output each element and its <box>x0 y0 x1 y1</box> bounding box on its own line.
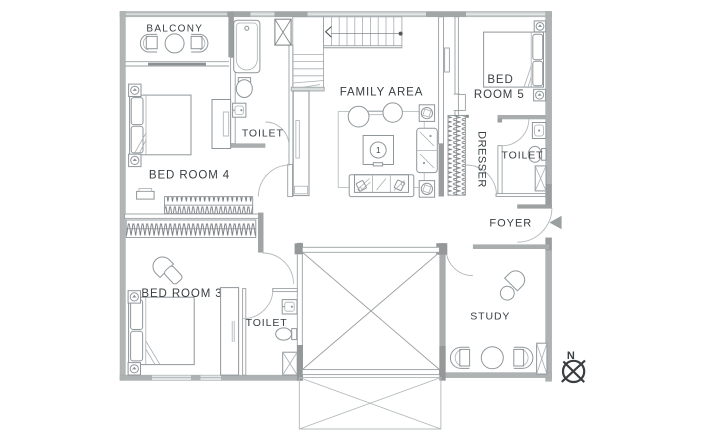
svg-text:TOILET: TOILET <box>242 127 284 139</box>
svg-text:BALCONY: BALCONY <box>146 24 203 35</box>
svg-text:BED ROOM 3: BED ROOM 3 <box>141 288 222 300</box>
svg-text:TOILET: TOILET <box>246 317 288 329</box>
svg-text:TOILET: TOILET <box>502 149 544 161</box>
svg-text:STUDY: STUDY <box>470 310 510 322</box>
svg-text:ROOM 5: ROOM 5 <box>474 89 525 101</box>
svg-text:BED ROOM 4: BED ROOM 4 <box>149 169 230 181</box>
svg-text:FOYER: FOYER <box>489 218 532 230</box>
svg-text:DRESSER: DRESSER <box>476 131 488 188</box>
svg-text:1: 1 <box>376 146 381 155</box>
svg-text:FAMILY AREA: FAMILY AREA <box>340 87 424 99</box>
svg-text:BED: BED <box>487 74 513 86</box>
